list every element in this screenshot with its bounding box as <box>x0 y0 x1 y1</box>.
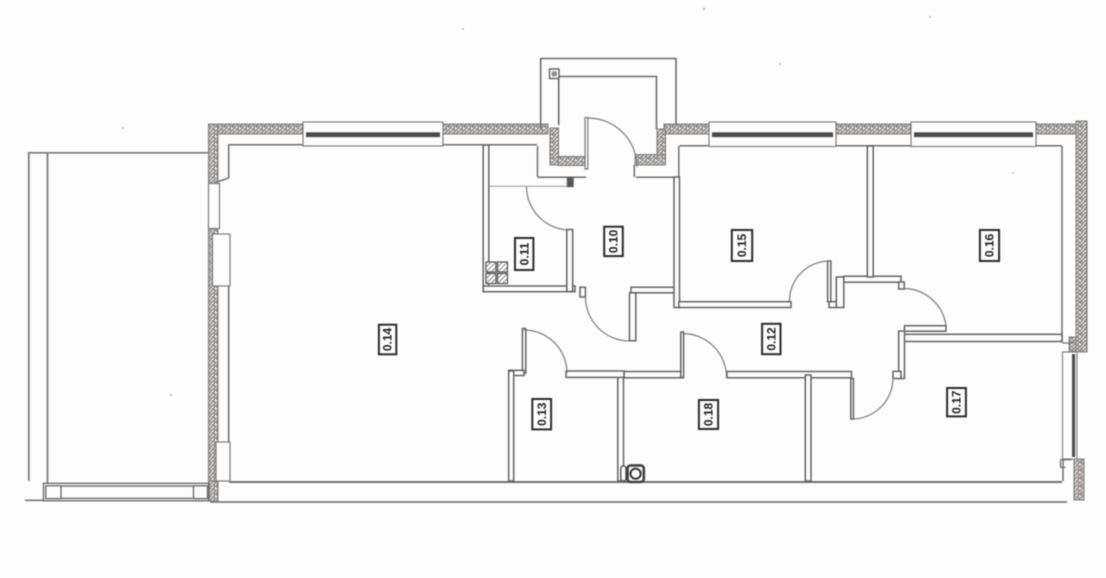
svg-text:0.18: 0.18 <box>702 402 716 426</box>
svg-text:0.17: 0.17 <box>950 390 964 414</box>
svg-text:0.15: 0.15 <box>735 233 749 257</box>
svg-text:0.13: 0.13 <box>535 402 549 426</box>
svg-text:0.11: 0.11 <box>517 242 531 265</box>
svg-text:0.14: 0.14 <box>381 327 395 351</box>
svg-text:0.10: 0.10 <box>607 229 621 253</box>
svg-text:0.12: 0.12 <box>764 327 778 351</box>
svg-text:0.16: 0.16 <box>983 233 997 257</box>
